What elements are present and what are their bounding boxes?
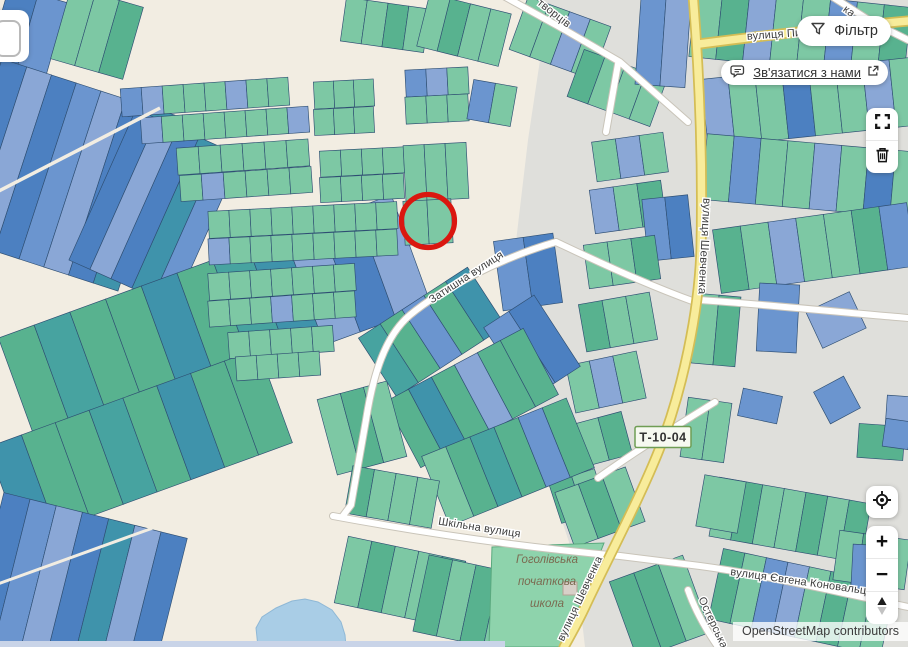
parcel[interactable] [376, 229, 398, 256]
parcel[interactable] [225, 80, 248, 109]
parcel[interactable] [162, 84, 185, 113]
locate-button-group [866, 486, 898, 518]
parcel[interactable] [333, 107, 354, 134]
parcel[interactable] [120, 87, 143, 116]
parcel[interactable] [249, 330, 272, 357]
parcel[interactable] [176, 147, 200, 175]
parcel[interactable] [287, 106, 310, 133]
parcel[interactable] [201, 173, 225, 200]
delete-button[interactable] [866, 140, 898, 173]
parcel[interactable] [313, 109, 334, 136]
parcel[interactable] [405, 69, 427, 97]
parcel[interactable] [208, 300, 231, 327]
parcel[interactable] [250, 236, 272, 263]
parcel[interactable] [223, 171, 247, 198]
external-link-icon [867, 65, 879, 80]
partial-map-control[interactable] [0, 10, 29, 62]
parcel[interactable] [224, 111, 247, 138]
parcel[interactable] [312, 265, 335, 293]
parcel[interactable] [405, 96, 427, 124]
parcel[interactable] [267, 168, 291, 195]
parcel[interactable] [313, 81, 334, 109]
compass-button[interactable] [866, 591, 898, 624]
parcel[interactable] [267, 77, 290, 106]
parcel[interactable] [289, 166, 313, 193]
parcel[interactable] [333, 291, 356, 318]
parcel[interactable] [179, 174, 203, 201]
parcel[interactable] [204, 82, 227, 111]
parcel[interactable] [319, 150, 341, 177]
parcel[interactable] [286, 139, 310, 167]
parcel[interactable] [208, 272, 231, 300]
parcel[interactable] [340, 176, 362, 202]
parcel[interactable] [242, 142, 266, 170]
zoom-out-button[interactable]: − [866, 558, 898, 591]
parcel[interactable] [313, 205, 335, 233]
parcel[interactable] [270, 328, 293, 355]
parcel[interactable] [271, 295, 294, 322]
parcel[interactable] [426, 95, 448, 123]
parcel[interactable] [353, 79, 374, 107]
parcel[interactable] [292, 233, 314, 260]
parcel[interactable] [264, 140, 288, 168]
zoom-in-button[interactable]: + [866, 526, 898, 558]
locate-button[interactable] [866, 486, 898, 518]
parcel[interactable] [245, 169, 269, 196]
map-canvas[interactable]: Гоголівська початкова школа [0, 0, 908, 647]
parcel[interactable] [271, 235, 293, 262]
parcel[interactable] [140, 116, 163, 143]
parcel[interactable] [220, 144, 244, 172]
school-label: школа [530, 598, 564, 610]
parcel[interactable] [235, 355, 258, 380]
road-shield: Т-10-04 [635, 427, 691, 448]
parcel[interactable] [250, 208, 272, 236]
parcel[interactable] [312, 325, 335, 352]
parcel[interactable] [245, 109, 268, 136]
parcel[interactable] [182, 113, 205, 140]
parcel[interactable] [445, 142, 469, 199]
map-app-window: Гоголівська початкова школа [0, 0, 908, 647]
parcel[interactable] [361, 174, 383, 200]
parcel[interactable] [250, 269, 273, 297]
parcel[interactable] [355, 230, 377, 257]
parcel[interactable] [208, 238, 230, 265]
school-label: Гоголівська [516, 554, 578, 566]
attribution: OpenStreetMap contributors [733, 622, 908, 641]
parcel[interactable] [246, 79, 269, 108]
parcel[interactable] [198, 145, 222, 173]
parcel[interactable] [355, 203, 377, 231]
parcel[interactable] [696, 475, 746, 534]
parcel[interactable] [353, 106, 374, 133]
parcel[interactable] [361, 148, 383, 175]
parcel[interactable] [228, 331, 251, 358]
parcel[interactable] [639, 132, 668, 175]
filter-button[interactable]: Фільтр [797, 16, 891, 46]
filter-button-label: Фільтр [834, 23, 878, 39]
chat-icon [730, 64, 747, 82]
parcel[interactable] [271, 268, 294, 296]
tool-group [866, 108, 898, 173]
water-band [0, 641, 505, 647]
trash-icon [875, 147, 890, 168]
parcel[interactable] [313, 292, 336, 319]
parcel[interactable] [277, 353, 300, 378]
parcel[interactable] [313, 232, 335, 259]
parcel[interactable] [447, 67, 469, 95]
funnel-icon [810, 21, 826, 41]
parcel[interactable] [183, 83, 206, 112]
parcel[interactable] [376, 202, 398, 230]
parcel[interactable] [298, 351, 321, 376]
parcel[interactable] [291, 327, 314, 354]
parcel[interactable] [319, 177, 341, 203]
parcel[interactable] [229, 298, 252, 325]
contact-button-label: Зв'язатися з нами [753, 65, 861, 80]
compass-icon [873, 595, 891, 622]
parcel[interactable] [229, 209, 251, 237]
parcel[interactable] [256, 354, 279, 379]
parcel[interactable] [756, 283, 800, 353]
parcel[interactable] [208, 210, 230, 238]
minus-icon: − [876, 564, 888, 585]
parcel[interactable] [271, 207, 293, 235]
parcel[interactable] [334, 204, 356, 232]
parcel[interactable] [161, 115, 184, 142]
parcel[interactable] [882, 418, 908, 449]
school-label: початкова [518, 576, 576, 588]
parcel[interactable] [333, 80, 354, 108]
rounded-frame-icon [0, 20, 21, 57]
zoom-control-group: + − [866, 526, 898, 624]
parcel[interactable] [229, 237, 251, 264]
parcel[interactable] [203, 112, 226, 139]
parcel[interactable] [266, 108, 289, 135]
parcel[interactable] [229, 271, 252, 299]
parcel[interactable] [334, 231, 356, 258]
parcel[interactable] [447, 94, 469, 122]
locate-icon [872, 490, 892, 515]
parcel[interactable] [382, 147, 404, 174]
parcel[interactable] [292, 266, 315, 294]
parcel[interactable] [426, 68, 448, 96]
svg-text:Т-10-04: Т-10-04 [639, 431, 686, 445]
parcel[interactable] [250, 297, 273, 324]
draw-area-button[interactable] [866, 108, 898, 140]
parcel[interactable] [292, 206, 314, 234]
plus-icon: + [876, 531, 888, 552]
frame-icon [874, 113, 891, 135]
parcel[interactable] [382, 173, 404, 199]
parcel[interactable] [333, 263, 356, 291]
parcel[interactable] [340, 149, 362, 176]
contact-button[interactable]: Зв'язатися з нами [721, 60, 888, 85]
parcel[interactable] [292, 294, 315, 321]
